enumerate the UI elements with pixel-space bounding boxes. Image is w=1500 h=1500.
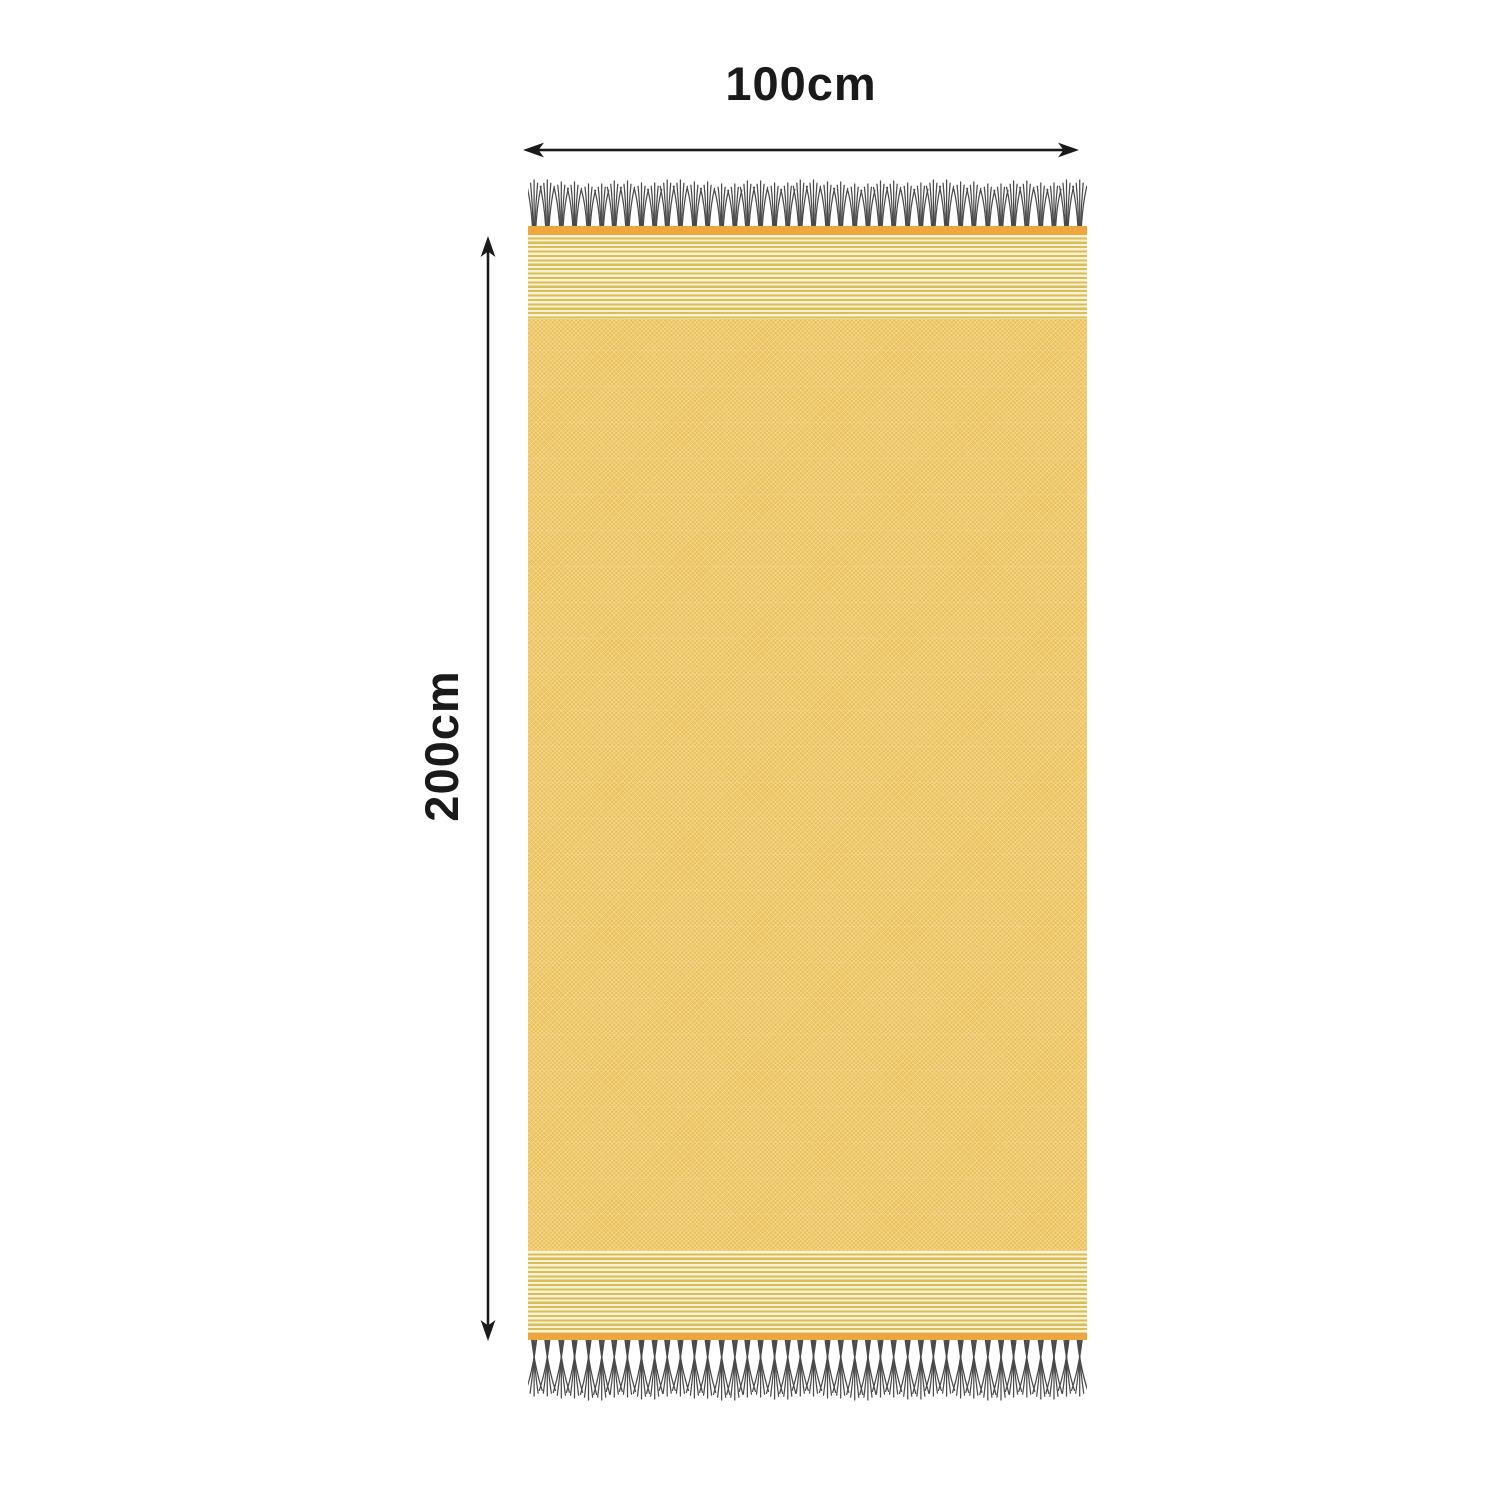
fringe-strand [709,185,712,226]
fringe-strand [554,188,559,226]
fringe-strand [771,186,774,226]
fringe-strand [925,1340,936,1390]
fringe-strand [734,1340,739,1397]
fringe-strand [900,1340,911,1393]
fringe-strand [840,1340,845,1395]
fringe-strand [720,1340,725,1397]
fringe-strand [1006,1340,1017,1391]
fringe-strand [917,1340,922,1396]
fringe-strand [701,188,706,226]
fringe-strand [652,1340,663,1393]
fringe-strand [989,187,992,226]
fringe-strand [890,184,893,226]
fringe-strand [953,1340,964,1392]
fringe-strand [872,1340,883,1391]
fringe-strand [656,189,661,226]
towel-bottom-border-band [528,1333,1087,1340]
fringe-strand [940,186,945,226]
fringe-strand [656,186,659,226]
product-dimension-diagram: 100cm 200cm [0,0,1500,1500]
fringe-strand [587,1340,592,1397]
width-arrow-head-left [523,143,544,158]
fringe-strand [922,186,925,226]
fringe-strand [829,188,834,226]
fringe-strand [696,188,701,226]
fringe-strand [1077,1340,1087,1390]
fringe-strand [590,190,595,226]
fringe-strand [598,1340,603,1397]
fringe-strand [642,186,645,226]
fringe-strand [828,185,831,226]
fringe-strand [736,187,739,226]
fringe-strand [820,1340,831,1392]
fringe-strand [625,1340,636,1391]
fringe-strand [598,187,601,226]
fringe-strand [798,1340,809,1390]
fringe-strand [604,190,609,226]
fringe-strand [833,1340,844,1392]
fringe-strand [984,187,987,226]
fringe-strand [731,1340,736,1397]
fringe-strand [1034,189,1039,226]
fringe-strand [682,186,687,226]
fringe-strand [673,186,678,226]
fringe-strand [929,1340,934,1393]
fringe-strand [1060,186,1065,226]
fringe-strand [851,187,854,226]
fringe-strand [935,186,940,226]
fringe-strand [981,190,986,226]
fringe-strand [1037,186,1040,226]
fringe-strand [882,187,887,226]
fringe-strand [638,1340,643,1396]
fringe-strand [744,184,747,226]
fringe-strand [857,190,862,226]
fringe-strand [848,190,853,226]
fringe-strand [1065,1340,1070,1393]
fringe-strand [533,1340,538,1393]
fringe-strand [544,183,547,226]
fringe-strand [895,187,900,226]
fringe-strand [639,1340,650,1393]
fringe-strand [626,1340,631,1394]
fringe-strand [599,1340,610,1394]
fringe-strand [834,188,839,226]
fringe-strand [549,186,554,226]
fringe-strand [648,189,653,226]
fringe-strand [663,1340,668,1393]
fringe-strand [1015,187,1020,226]
fringe-strand [984,1340,989,1397]
fringe-strand [666,1340,671,1393]
fringe-strand [606,1340,617,1391]
fringe-strand [810,1340,815,1393]
fringe-strand [985,1340,996,1394]
fringe-strand [714,1340,725,1394]
fringe-strand [998,187,1001,226]
fringe-strand [776,186,779,226]
fringe-strand [672,1340,683,1390]
fringe-strand [594,1340,605,1394]
fringe-strand [1058,1340,1069,1390]
fringe-strand [705,1340,716,1392]
towel-bottom-stripe-border [528,1251,1087,1333]
fringe-strand [920,1340,925,1396]
fringe-strand [582,190,587,226]
fringe-strand [1076,1340,1081,1393]
fringe-strand [1024,1340,1035,1391]
fringe-strand [776,189,781,226]
fringe-strand [573,1340,578,1395]
fringe-strand [543,1340,548,1393]
fringe-strand [568,188,573,226]
fringe-strand [954,188,959,226]
fringe-strand [793,186,798,226]
fringe-strand [790,189,795,226]
fringe-strand [660,186,665,226]
fringe-strand [877,184,880,226]
fringe-strand [758,1340,769,1391]
fringe-strand [861,190,866,226]
fringe-strand [805,1340,816,1390]
fringe-strand [864,1340,869,1397]
fringe-strand [709,188,714,226]
fringe-strand [1011,1340,1022,1391]
fringe-strand [970,1340,975,1395]
fringe-strand [628,184,631,226]
fringe-strand [586,1340,597,1394]
fringe-strand [842,185,845,226]
fringe-strand [787,1340,792,1396]
height-arrow-head-top [481,236,496,257]
fringe-strand [1028,184,1031,226]
fringe-strand [1023,1340,1028,1394]
fringe-strand [624,184,627,226]
fringe-strand [931,1340,942,1390]
fringe-strand [784,1340,789,1396]
fringe-strand [629,187,634,226]
fringe-strand [1010,184,1013,226]
fringe-strand [531,183,534,226]
fringe-strand [814,183,817,226]
fringe-strand [926,186,931,226]
fringe-strand [772,1340,783,1393]
fringe-strand [647,1340,658,1393]
fringe-strand [693,1340,698,1395]
fringe-strand [640,1340,645,1396]
fringe-strand [917,186,920,226]
fringe-strand [762,187,767,226]
fringe-strand [676,1340,681,1393]
fringe-strand [860,1340,871,1394]
fringe-strand [607,187,612,226]
fringe-strand [679,1340,684,1393]
fringe-strand [704,1340,709,1395]
fringe-strand [904,186,907,226]
fringe-strand [887,187,892,226]
fringe-strand [879,1340,884,1394]
height-arrow [481,236,496,1341]
fringe-strand [723,190,728,226]
towel-top-fringe [528,177,1087,226]
fringe-strand [948,183,951,226]
fringe-strand [651,1340,656,1396]
fringe-strand [664,183,667,226]
width-arrow-line [536,149,1066,152]
fringe-strand [866,1340,877,1394]
fringe-strand [1046,1340,1057,1393]
fringe-strand [536,186,541,226]
fringe-strand [1007,187,1012,226]
fringe-strand [567,1340,578,1392]
fringe-strand [1052,1340,1063,1393]
fringe-strand [918,1340,929,1393]
fringe-strand [623,1340,628,1394]
fringe-strand [943,1340,948,1393]
fringe-strand [761,184,764,226]
fringe-strand [546,1340,551,1393]
fringe-strand [1010,1340,1015,1394]
fringe-strand [934,183,937,226]
fringe-strand [993,1340,1004,1394]
fringe-strand [1051,186,1054,226]
fringe-strand [539,1340,550,1390]
fringe-strand [691,185,694,226]
fringe-strand [1081,183,1084,226]
fringe-strand [957,1340,962,1395]
fringe-strand [1002,187,1005,226]
fringe-strand [797,183,800,226]
fringe-strand [718,1340,723,1397]
fringe-strand [864,187,867,226]
fringe-strand [581,1340,592,1394]
fringe-strand [740,187,745,226]
fringe-strand [677,183,680,226]
fringe-strand [1033,1340,1044,1393]
fringe-strand [771,1340,776,1396]
fringe-strand [1076,183,1079,226]
fringe-strand [651,186,654,226]
fringe-strand [1072,1340,1083,1390]
fringe-strand [876,1340,881,1394]
fringe-strand [886,1340,897,1391]
fringe-strand [668,183,671,226]
fringe-strand [1043,189,1048,226]
fringe-strand [944,1340,955,1390]
fringe-strand [1038,1340,1049,1393]
fringe-strand [635,189,640,226]
fringe-strand [768,189,773,226]
fringe-strand [958,1340,969,1392]
height-arrow-head-bottom [481,1320,496,1341]
height-arrow-line [487,250,490,1328]
fringe-strand [681,183,684,226]
fringe-strand [811,1340,822,1390]
fringe-strand [785,1340,796,1393]
fringe-strand [781,189,786,226]
fringe-strand [589,187,592,226]
fringe-strand [563,188,568,226]
fringe-strand [997,1340,1002,1397]
fringe-strand [732,1340,743,1394]
fringe-strand [825,1340,836,1392]
fringe-strand [870,190,875,226]
towel-top-border-band [528,226,1087,235]
fringe-strand [821,188,826,226]
fringe-strand [548,183,551,226]
fringe-strand [1056,189,1061,226]
fringe-strand [619,1340,630,1391]
fringe-strand [1042,186,1045,226]
fringe-strand [856,187,859,226]
fringe-strand [585,1340,590,1397]
fringe-strand [1026,1340,1031,1394]
fringe-strand [812,1340,817,1393]
fringe-strand [728,190,733,226]
fringe-strand [939,1340,950,1390]
fringe-strand [557,1340,562,1395]
fringe-strand [807,186,812,226]
fringe-strand [545,1340,556,1390]
fringe-strand [792,1340,803,1390]
fringe-strand [612,1340,623,1391]
fringe-strand [687,188,692,226]
fringe-strand [796,1340,801,1393]
fringe-strand [665,1340,676,1390]
fringe-strand [994,190,999,226]
fringe-strand [784,186,787,226]
fringe-strand [1047,189,1052,226]
fringe-strand [706,1340,711,1395]
fringe-strand [966,1340,977,1392]
fringe-strand [767,1340,778,1393]
fringe-strand [990,190,995,226]
fringe-strand [851,1340,856,1397]
fringe-strand [737,190,742,226]
fringe-strand [1003,190,1008,226]
fringe-strand [1012,1340,1017,1394]
towel-body [528,319,1087,1251]
fringe-strand [1053,1340,1058,1396]
fringe-strand [904,1340,909,1396]
fringe-strand [773,1340,778,1396]
fringe-strand [1023,184,1026,226]
fringe-strand [718,187,721,226]
fringe-strand [815,186,820,226]
fringe-strand [1000,1340,1005,1397]
fringe-strand [824,185,827,226]
fringe-strand [1055,186,1058,226]
fringe-strand [847,1340,858,1394]
fringe-strand [907,1340,912,1396]
fringe-strand [601,1340,606,1397]
towel-top-stripe-border [528,235,1087,319]
fringe-strand [575,185,578,226]
fringe-strand [869,187,872,226]
fringe-strand [799,1340,804,1393]
fringe-strand [909,189,914,226]
fringe-strand [745,1340,756,1391]
fringe-strand [802,186,807,226]
fringe-strand [1063,183,1066,226]
fringe-strand [948,186,953,226]
fringe-strand [1037,1340,1042,1396]
fringe-strand [1014,184,1017,226]
fringe-strand [980,1340,991,1394]
fringe-strand [971,1340,982,1392]
fringe-strand [754,187,759,226]
fringe-strand [759,1340,764,1394]
fringe-strand [757,184,760,226]
fringe-strand [1050,1340,1055,1396]
fringe-strand [826,1340,831,1395]
fringe-strand [603,187,606,226]
fringe-strand [638,186,641,226]
fringe-strand [611,184,614,226]
fringe-strand [943,183,946,226]
fringe-strand [1064,1340,1075,1390]
fringe-strand [692,1340,703,1392]
fringe-strand [585,187,588,226]
fringe-strand [1040,1340,1045,1396]
fringe-strand [881,184,884,226]
fringe-strand [905,1340,916,1393]
fringe-strand [715,190,720,226]
fringe-strand [1029,187,1034,226]
fringe-strand [945,1340,950,1393]
fringe-strand [1067,183,1070,226]
fringe-strand [1068,186,1073,226]
fringe-strand [837,185,840,226]
fringe-strand [749,187,754,226]
fringe-strand [930,183,933,226]
fringe-strand [535,183,538,226]
fringe-strand [801,183,804,226]
fringe-strand [895,184,898,226]
fringe-strand [867,1340,872,1397]
fringe-strand [852,1340,863,1394]
fringe-strand [976,188,981,226]
fringe-strand [973,1340,978,1395]
fringe-strand [970,185,973,226]
fringe-strand [967,188,972,226]
fringe-strand [621,187,626,226]
fringe-strand [1073,186,1078,226]
width-arrow-head-right [1058,143,1079,158]
towel-bottom-fringe [528,1340,1087,1403]
fringe-strand [957,185,960,226]
fringe-strand [719,1340,730,1394]
towel-graphic [528,226,1087,1340]
fringe-strand [686,1340,697,1392]
fringe-strand [1019,1340,1029,1391]
fringe-strand [643,189,648,226]
width-arrow [523,143,1079,158]
fringe-strand [616,187,621,226]
fringe-strand [999,1340,1010,1394]
fringe-strand [854,1340,859,1397]
fringe-strand [874,187,879,226]
fringe-strand [540,186,545,226]
fringe-strand [532,1340,543,1390]
fringe-strand [1081,186,1086,226]
fringe-strand [678,1340,689,1390]
fringe-strand [560,1340,565,1395]
fringe-strand [553,1340,564,1392]
fringe-strand [723,187,726,226]
fringe-strand [987,1340,992,1397]
fringe-strand [571,185,574,226]
